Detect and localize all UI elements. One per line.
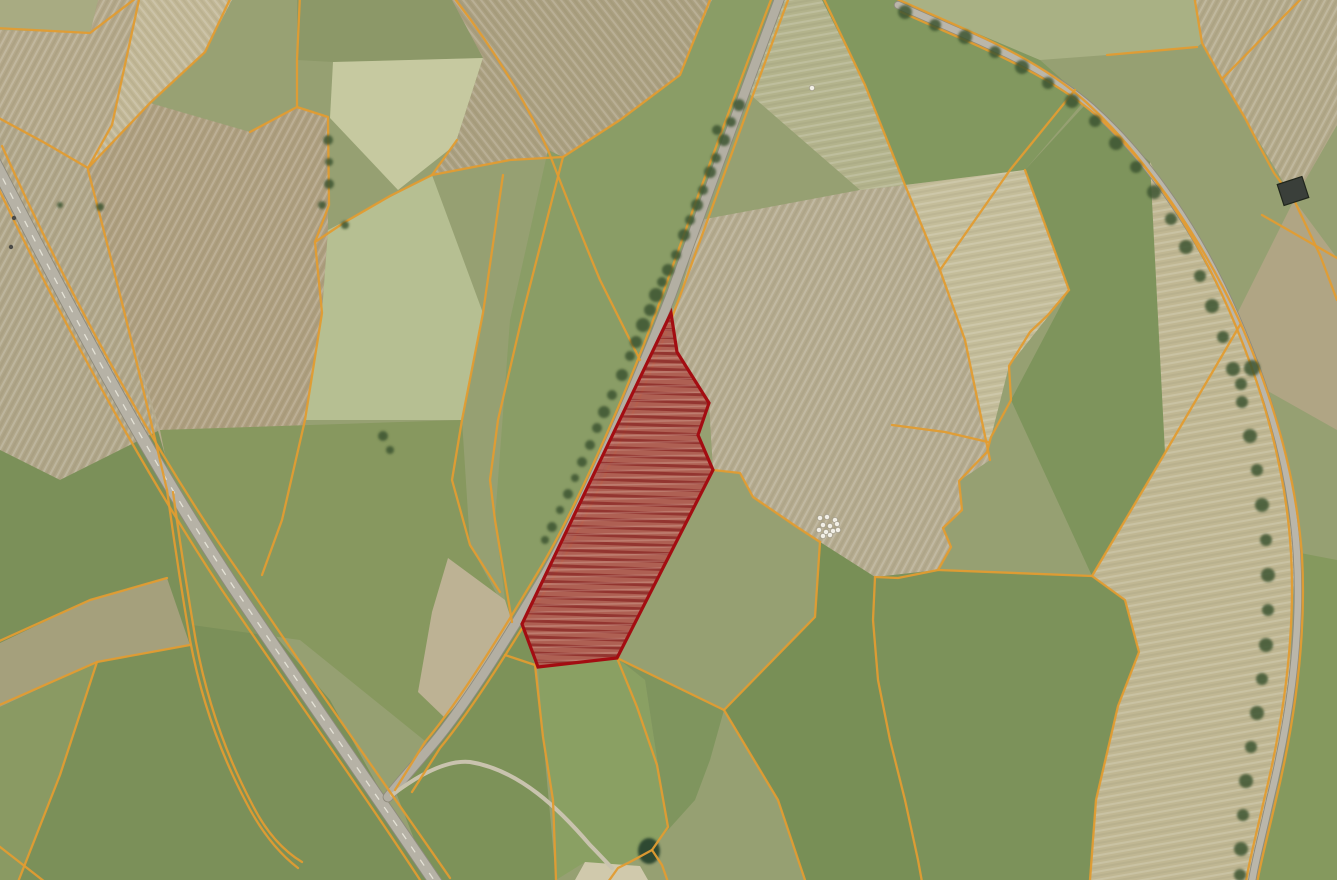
hay-bale [824,514,829,519]
tree [1239,774,1253,788]
hay-bale [817,515,822,520]
tree [1236,396,1248,408]
tree [547,522,557,532]
tree [1179,240,1193,254]
tree [1205,299,1219,313]
tree [325,158,333,166]
tree [1243,429,1257,443]
field-parcel [297,0,483,62]
tree [386,446,394,454]
tree [1260,534,1272,546]
tree [571,474,579,482]
tree [704,166,716,178]
tree [585,440,595,450]
tree [378,431,388,441]
tree [691,199,703,211]
tree [1065,94,1079,108]
tree [324,179,334,189]
tree [685,215,695,225]
tree [1262,604,1274,616]
map-viewport[interactable] [0,0,1337,880]
tree [541,536,549,544]
hay-bale [820,533,825,538]
tree [1244,360,1260,376]
tree [57,202,63,208]
tree [1261,568,1275,582]
tree [1089,115,1101,127]
tree [625,351,635,361]
tree [607,390,617,400]
tree [898,5,912,19]
tree [644,304,656,316]
tree [1237,809,1249,821]
tree [662,264,674,276]
tree [657,277,667,287]
tree [323,135,333,145]
tree [96,203,104,211]
tree [318,201,326,209]
vehicle [9,245,13,249]
hay-bale [834,521,839,526]
tree [698,185,708,195]
tree [592,423,602,433]
tree [1259,638,1273,652]
tree [989,46,1001,58]
tree [1234,842,1248,856]
tree [636,318,650,332]
hay-bale [816,527,821,532]
tree [1015,60,1029,74]
tree [341,221,349,229]
tree [726,117,736,127]
hay-bale [835,527,840,532]
tree [1130,161,1142,173]
tree [577,457,587,467]
tree [1147,185,1161,199]
tree [563,489,573,499]
tree [1042,77,1054,89]
tree [1255,498,1269,512]
tree [1226,362,1240,376]
tree [1217,331,1229,343]
tree [678,229,690,241]
tree [1251,464,1263,476]
tree [733,99,745,111]
hay-bale [827,532,832,537]
tree [1256,673,1268,685]
tree [671,250,681,260]
hay-bale [827,523,832,528]
tree [598,406,610,418]
tree [1250,706,1264,720]
hay-bale [820,522,825,527]
tree [630,336,642,348]
tree [1109,136,1123,150]
tree [711,153,721,163]
vehicle [12,216,16,220]
tree [556,506,564,514]
tree [1235,378,1247,390]
tree [1165,213,1177,225]
tree [1245,741,1257,753]
map-canvas[interactable] [0,0,1337,880]
tree [929,19,941,31]
tree [649,288,663,302]
tree [712,125,722,135]
tree [718,134,730,146]
tree [1194,270,1206,282]
hay-bale [809,85,814,90]
tree [958,30,972,44]
tree [616,369,628,381]
